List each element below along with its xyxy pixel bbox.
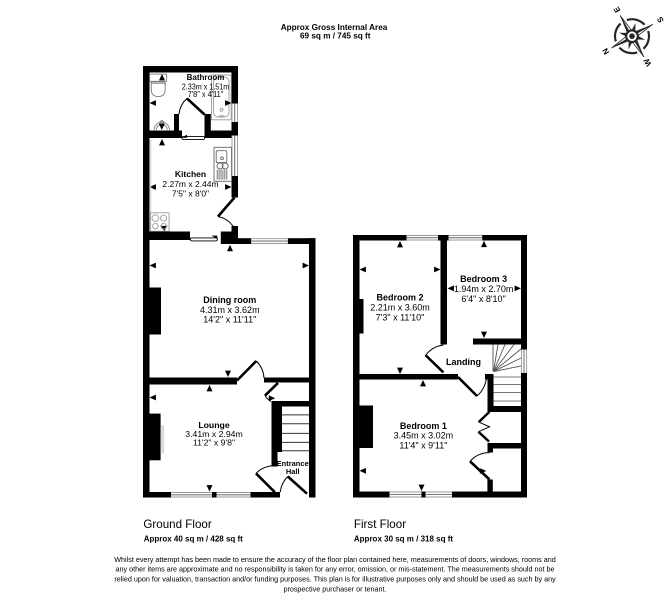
svg-text:Dining room: Dining room [203,295,256,305]
svg-text:Bedroom 1: Bedroom 1 [400,421,447,431]
svg-text:69 sq m / 745 sq ft: 69 sq m / 745 sq ft [300,32,371,41]
svg-text:relied upon for valuation, tra: relied upon for valuation, transaction a… [114,575,556,584]
svg-text:14'2" x 11'11": 14'2" x 11'11" [203,314,256,324]
svg-text:11'2" x 9'8": 11'2" x 9'8" [193,438,235,448]
svg-text:Approx 40 sq m / 428 sq ft: Approx 40 sq m / 428 sq ft [144,535,243,544]
svg-text:Approx 30 sq m / 318 sq ft: Approx 30 sq m / 318 sq ft [354,535,453,544]
svg-text:7'3" x 11'10": 7'3" x 11'10" [376,313,425,323]
svg-text:7'5" x 8'0": 7'5" x 8'0" [172,189,209,199]
svg-text:Landing: Landing [446,357,481,367]
svg-text:Ground Floor: Ground Floor [143,518,211,531]
svg-text:First Floor: First Floor [354,518,406,531]
svg-text:Approx Gross Internal Area: Approx Gross Internal Area [281,23,388,32]
svg-text:Whilst every attempt has been: Whilst every attempt has been made to en… [114,555,555,564]
svg-text:2.21m x 3.60m: 2.21m x 3.60m [370,303,430,313]
svg-text:Bedroom 2: Bedroom 2 [376,293,423,303]
svg-text:4.31m x 3.62m: 4.31m x 3.62m [200,305,260,315]
svg-text:11'4" x 9'11": 11'4" x 9'11" [399,440,447,450]
svg-text:7'8" x 4'11": 7'8" x 4'11" [188,90,224,99]
svg-text:1.94m x 2.70m: 1.94m x 2.70m [454,284,514,294]
svg-text:any other items are approximat: any other items are approximate and no r… [116,565,555,574]
svg-text:prospective purchaser or tenan: prospective purchaser or tenant. [283,584,386,593]
svg-text:Kitchen: Kitchen [175,169,206,179]
svg-text:6'4" x 8'10": 6'4" x 8'10" [461,294,505,304]
svg-text:Bathroom: Bathroom [187,73,225,82]
svg-text:Hall: Hall [286,467,300,476]
svg-text:3.45m x 3.02m: 3.45m x 3.02m [394,431,454,441]
svg-text:Bedroom 3: Bedroom 3 [460,274,507,284]
